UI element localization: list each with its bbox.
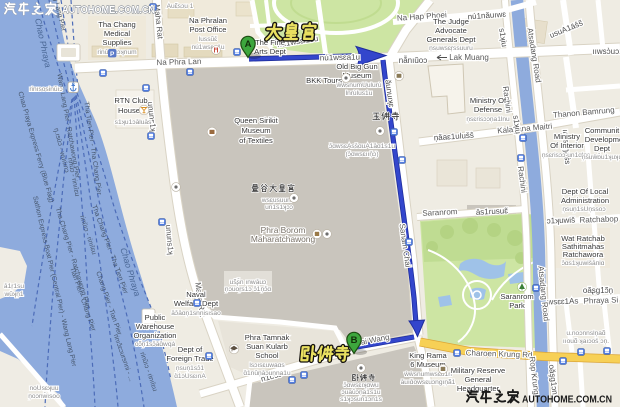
svg-text:ņsuņ1sUņssoɔ: ņsuņ1sUņssoɔ [562, 206, 606, 213]
svg-text:ııwsɔ̀uɔ1: ııwsɔ̀uɔ1 [592, 47, 620, 56]
svg-text:ŵŵsnumUulurù: ŵŵsnumUulurù [335, 82, 381, 89]
svg-text:ɑ̆1nŭņāɔuņna1u: ɑ̆1nŭņāɔuņna1u [243, 369, 291, 377]
svg-text:House: House [118, 106, 140, 115]
svg-text:u.noɔnnslņaɑ̃: u.noɔnnslņaɑ̃ [566, 330, 606, 337]
svg-text:Headquarter: Headquarter [457, 384, 500, 393]
svg-text:s1ʞɔsun1ɔn1s: s1ʞɔsun1ɔn1s [340, 396, 382, 403]
svg-text:oăʂg1ɔ̃ņ: oăʂg1ɔ̃ņ [583, 286, 613, 295]
svg-text:wũʞņ1: wũʞņ1 [3, 291, 23, 298]
svg-text:Defense: Defense [474, 105, 502, 114]
svg-text:P: P [110, 51, 115, 58]
svg-text:Developme: Developme [585, 135, 620, 144]
svg-text:Generals Dept: Generals Dept [427, 35, 477, 44]
svg-text:wsɛusuuni: wsɛusuuni [261, 197, 293, 204]
svg-text:nẵnıŭoɔ: nẵnıŭoɔ [399, 56, 427, 65]
svg-text:un1s1ʞɔɔ: un1s1ʞɔɔ [265, 204, 294, 211]
svg-text:Museum: Museum [241, 126, 270, 135]
svg-text:General: General [464, 375, 491, 384]
svg-text:King Rama: King Rama [409, 351, 447, 360]
svg-text:Na Phra Lan: Na Phra Lan [156, 57, 201, 67]
svg-text:Dept: Dept [594, 144, 611, 153]
svg-text:Lak Muang: Lak Muang [449, 53, 489, 62]
svg-text:The Judge: The Judge [433, 17, 469, 26]
svg-text:ņsɛrisɔɔņa1lnu: ņsɛrisɔɔņa1lnu [466, 116, 510, 123]
svg-text:Maharatchawong: Maharatchawong [251, 234, 316, 244]
svg-text:of Textiles: of Textiles [239, 136, 273, 145]
svg-text:ņɔuoŗs1ɔ ɔ̆1ņɔ̆ɑ: ņɔuoŗs1ɔ ɔ̆1ņɔ̆ɑ [225, 285, 272, 293]
svg-text:ņsuŵɒ̆u1ʞuʞu: ņsuŵɒ̆u1ʞuʞu [582, 152, 620, 161]
svg-text:Administration: Administration [561, 196, 609, 205]
svg-text:Phraya Si: Phraya Si [583, 295, 618, 305]
svg-text:RTN Club: RTN Club [114, 96, 147, 105]
svg-text:wsɛɛ1As: wsɛɛ1As [546, 296, 578, 306]
svg-text:Ministry Of: Ministry Of [470, 96, 507, 105]
svg-text:Ratchabop: Ratchabop [579, 214, 619, 224]
svg-text:Saranrom: Saranrom [422, 207, 458, 218]
svg-text:Of Interior: Of Interior [550, 141, 584, 150]
svg-text:A: A [245, 39, 252, 50]
svg-text:Na Phralan: Na Phralan [189, 16, 227, 25]
svg-text:Saranrom: Saranrom [500, 292, 533, 301]
svg-text:rinŭıɔ ıɔʞnum: rinŭıɔ ıɔʞnum [97, 49, 137, 56]
svg-text:noUsɛʞuu: noUsɛʞuu [29, 385, 58, 392]
svg-text:ııouɑ̃ ʞaıɔoš ɔņ.: ııouɑ̃ ʞaıɔoš ɔņ. [563, 338, 609, 345]
svg-text:Old Big Gun: Old Big Gun [336, 62, 377, 71]
svg-text:ās1rusuɛ̃: ās1rusuɛ̃ [476, 206, 509, 217]
svg-text:School: School [255, 351, 279, 360]
svg-text:ā1ŗ1su: ā1ŗ1su [4, 283, 24, 290]
svg-text:Dept Of Local: Dept Of Local [562, 187, 609, 196]
svg-text:ɑ̀1ɔUsɛınA: ɑ̀1ɔUsɛınA [174, 372, 206, 380]
svg-text:Post Office: Post Office [189, 25, 226, 34]
svg-text:Phra Tamnak: Phra Tamnak [245, 333, 290, 342]
svg-text:ņsuņ1sɔ̆1: ņsuņ1sɔ̆1 [176, 364, 205, 372]
svg-text:rinısosinŭıɔ: rinısosinŭıɔ [29, 86, 63, 93]
svg-text:ɔ̆ɑwsɛıʞɑwu: ɔ̆ɑwsɛıʞɑwu [343, 381, 379, 389]
svg-text:Suan Kularb: Suan Kularb [246, 342, 288, 351]
svg-text:Naval: Naval [186, 290, 206, 299]
svg-text:lussũɛ̆: lussũɛ̆ [199, 35, 217, 43]
svg-text:Ministry: Ministry [554, 132, 580, 141]
svg-text:AUTOHOME.COM.CN: AUTOHOME.COM.CN [62, 5, 155, 16]
svg-text:Organization: Organization [133, 331, 176, 340]
svg-text:lsɔısɛuwaɑs: lsɔısɛuwaɑs [249, 362, 285, 369]
svg-text:oɔ̃ņ1sɔ̆āɑ̆wqá: oɔ̃ņ1sɔ̆āɑ̆wqá [135, 340, 176, 348]
svg-text:Public: Public [145, 313, 166, 322]
svg-text:Park: Park [509, 301, 525, 310]
svg-text:ņsuwsɛŗssuuru: ņsuwsɛŗssuuru [429, 45, 473, 52]
svg-text:Ratchawora: Ratchawora [563, 250, 604, 259]
svg-text:(ɔ̆ɑwsɛııņ̆ɔ): (ɔ̆ɑwsɛııņ̆ɔ) [345, 150, 378, 158]
svg-text:Tha Chang: Tha Chang [98, 20, 136, 29]
svg-text:Advocate: Advocate [435, 26, 467, 35]
svg-text:us̃ʂ̆n ınwāuɔ: us̃ʂ̆n ınwāuɔ [230, 277, 267, 286]
svg-text:B: B [351, 335, 358, 346]
svg-text:Communit: Communit [585, 126, 620, 135]
svg-text:lnrùlus1u: lnrùlus1u [346, 90, 373, 97]
svg-text:ɔ̆ɑs1ʞuwišāпіɑ: ɔ̆ɑs1ʞuwišāпіɑ [562, 259, 605, 267]
svg-text:ɔuaŭɔņa1s1u: ɔuaŭɔņa1s1u [341, 389, 381, 396]
svg-text:AUTOHOME.COM.CN: AUTOHOME.COM.CN [522, 395, 612, 406]
svg-text:Military Reserve: Military Reserve [451, 366, 505, 375]
svg-text:Medical: Medical [104, 29, 130, 38]
svg-text:s1ʞu1ɔāluās: s1ʞu1ɔāluās [115, 119, 152, 126]
svg-text:āɔ̆āɑņ1snnisısao: āɔ̆āɑņ1snnisısao [171, 309, 221, 317]
svg-text:Queen Sirikit: Queen Sirikit [234, 116, 278, 125]
svg-text:āuıɑ̆owsɛuɔngıņá̃1: āuıɑ̆owsɛuɔngıņá̃1 [401, 378, 456, 386]
svg-text:ɔ1ʞuwiš: ɔ1ʞuwiš [547, 216, 576, 226]
svg-text:Warehouse: Warehouse [136, 322, 175, 331]
svg-text:ɔ̆ɑwsɛAss̆ɑuA1āɑ1s1u: ɔ̆ɑwsɛAss̆ɑuA1āɑ1s1u [329, 142, 395, 150]
svg-text:Auɛ̃sɔu 1: Auɛ̃sɔu 1 [167, 3, 194, 10]
svg-text:Dept of: Dept of [178, 345, 203, 354]
svg-text:ņoɔnw̆ısoo: ņoɔnw̆ısoo [28, 391, 60, 400]
svg-text:Supplies: Supplies [102, 38, 131, 47]
